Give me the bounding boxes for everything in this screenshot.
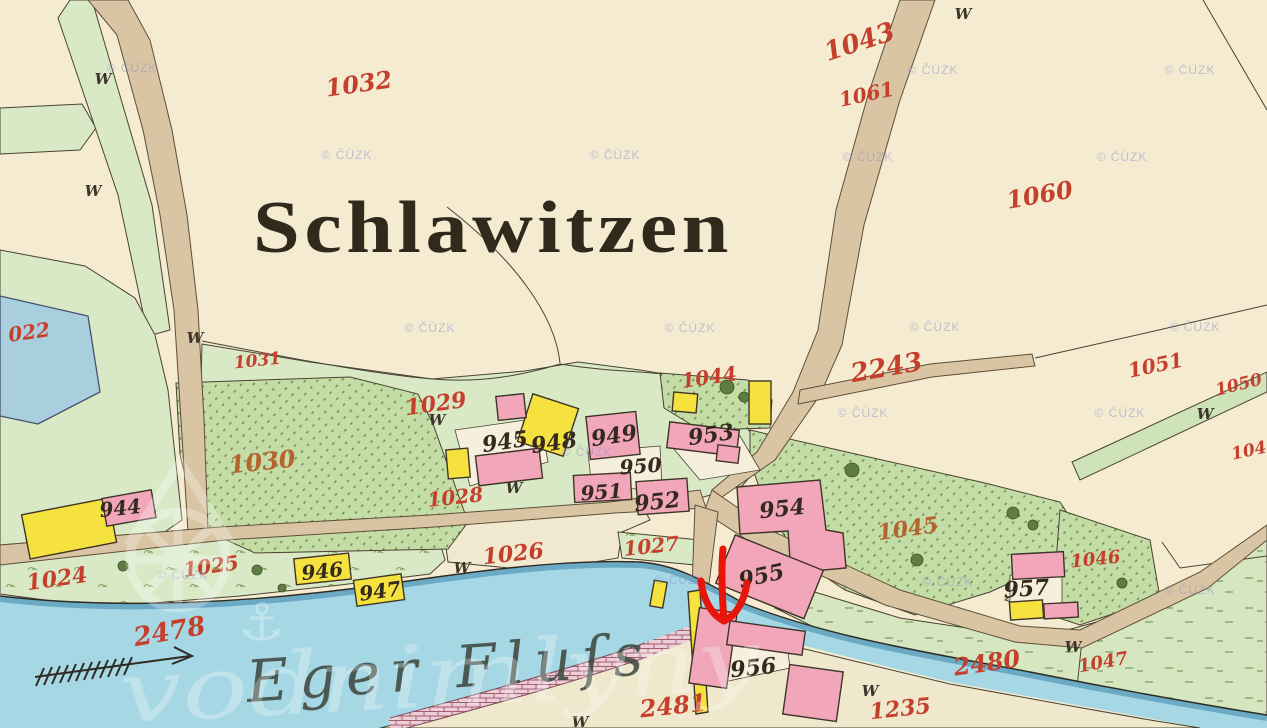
meadow-symbol-4: W [506, 479, 525, 497]
meadow-symbol-2: W [187, 329, 206, 347]
cuzk-watermark-8: © ČÚZK [665, 320, 716, 335]
house-label-957: 957 [1003, 574, 1051, 603]
house-label-946: 946 [300, 557, 344, 585]
meadow-symbol-6: W [955, 5, 974, 23]
cuzk-watermark-3: © ČÚZK [322, 147, 373, 162]
cuzk-watermark-6: © ČÚZK [1097, 149, 1148, 164]
cuzk-watermark-16: © ČÚZK [923, 574, 974, 589]
cuzk-watermark-11: © ČÚZK [838, 405, 889, 420]
meadow-symbol-9: W [862, 682, 881, 700]
building-wood-near-945 [446, 448, 470, 479]
meadow-band-topleft [0, 104, 96, 154]
building-953-annex [716, 445, 740, 464]
cuzk-watermark-5: © ČÚZK [843, 149, 894, 164]
building-945-north [496, 394, 526, 421]
map-title: Schlawitzen [253, 187, 733, 269]
cuzk-watermark-13: © ČÚZK [562, 444, 613, 459]
meadow-symbol-8: W [1065, 638, 1084, 656]
meadow-symbol-1: W [85, 182, 104, 200]
cadastral-map[interactable]: Schlawitzen Eger Fluſs 10321043106110601… [0, 0, 1267, 728]
cuzk-watermark-7: © ČÚZK [405, 320, 456, 335]
house-label-954: 954 [758, 494, 806, 525]
meadow-symbol-5: W [454, 559, 473, 577]
meadow-symbol-7: W [1197, 405, 1216, 423]
meadow-symbol-3: W [429, 411, 448, 429]
cuzk-watermark-15: © ČÚZK [655, 572, 706, 587]
cuzk-watermark-10: © ČÚZK [1170, 319, 1221, 334]
house-label-944: 944 [98, 494, 142, 522]
house-label-950: 950 [619, 453, 662, 480]
building-wood-1044-small [672, 392, 698, 413]
cuzk-watermark-4: © ČÚZK [590, 147, 641, 162]
cuzk-watermark-2: © ČÚZK [1165, 62, 1216, 77]
cuzk-watermark-0: © ČÚZK [107, 60, 158, 75]
building-956 [783, 664, 843, 721]
building-957-annex [1044, 602, 1079, 619]
cuzk-watermark-1: © ČÚZK [908, 62, 959, 77]
cuzk-watermark-9: © ČÚZK [910, 319, 961, 334]
cuzk-watermark-17: © ČÚZK [1165, 582, 1216, 597]
cuzk-watermark-12: © ČÚZK [1095, 405, 1146, 420]
house-label-952: 952 [633, 487, 681, 518]
building-wood-junction [749, 381, 771, 424]
house-label-951: 951 [580, 479, 623, 506]
